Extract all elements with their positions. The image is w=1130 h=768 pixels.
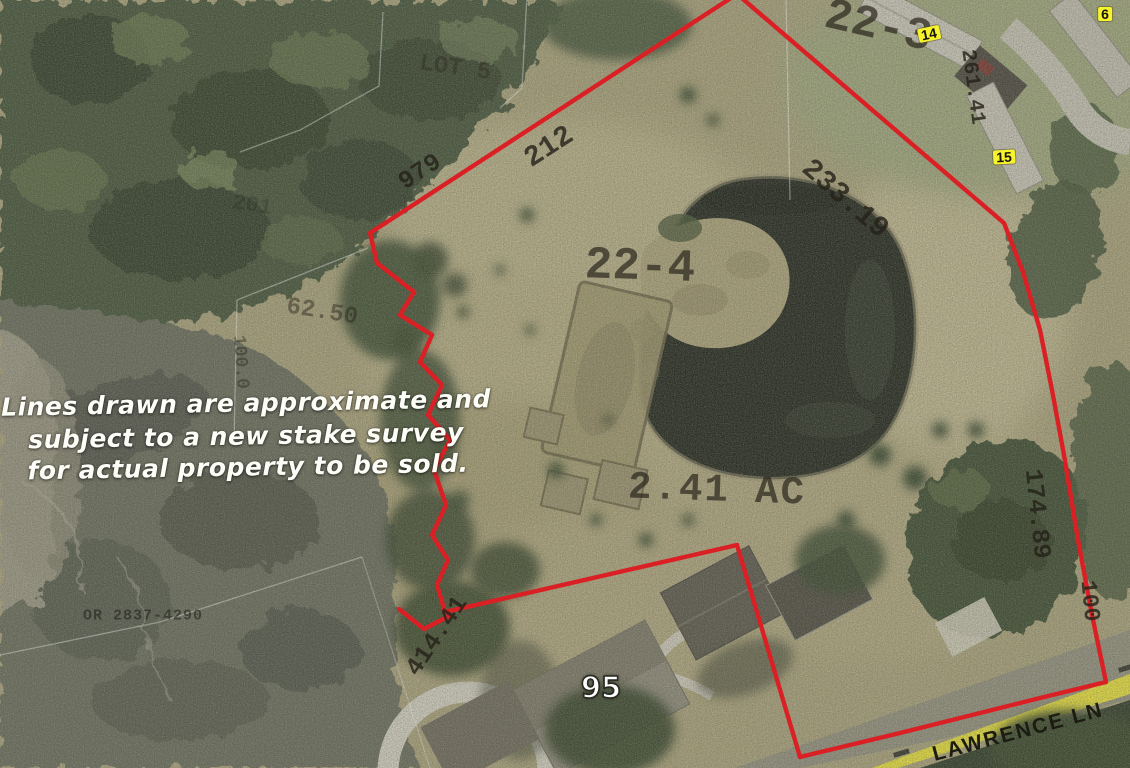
film-grain <box>0 0 1130 768</box>
aerial-survey-map: 22-3 22-4 2.41 AC LOT 5 201 979 212 233.… <box>0 0 1130 768</box>
aerial-photo <box>0 0 1130 768</box>
